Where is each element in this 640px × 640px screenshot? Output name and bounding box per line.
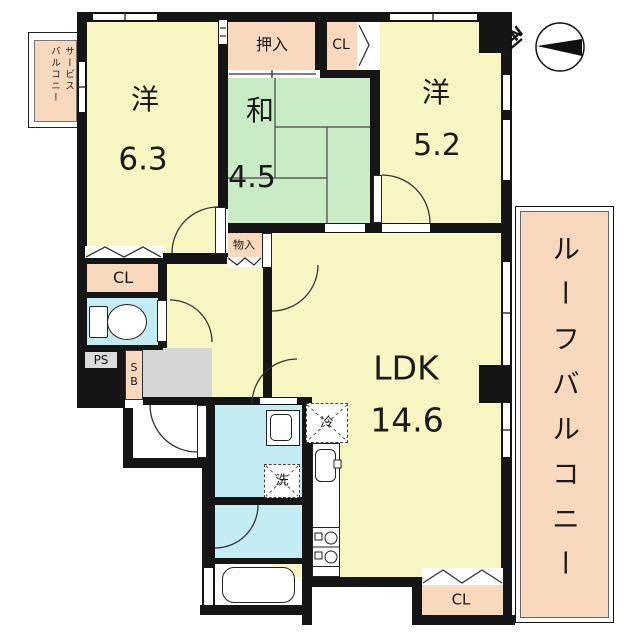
wall-ldk-jog [302,577,312,625]
compass-needle [537,39,582,56]
label-monoire: 物入 [233,240,255,251]
wall-porch-bottom [123,458,207,468]
compass-circle [536,23,584,71]
label-oshiire: 押入 [256,37,288,53]
bathtub [222,567,295,603]
floor-plan: ルーフバルコニー サービス バルコニー [0,0,640,640]
roof-balcony-label: ルーフバルコニー [550,234,578,594]
window-service-balcony [78,62,86,112]
label-western2: 洋 [422,79,450,107]
label-ldk-area: 14.6 [370,404,443,437]
closet-cl-bottom-folding [422,568,503,585]
washbasin-bowl [270,414,292,441]
wall-corner-ne [479,12,512,53]
label-laundry: 洗 [275,475,288,488]
label-ps: PS [94,354,109,366]
cl-top-door [357,22,370,70]
window-w1-top [93,13,157,21]
opening-japanese-ldk [325,224,365,232]
closet-monoire-folding [227,257,262,267]
label-western1: 洋 [131,86,159,114]
door-panel-ldk [262,233,272,268]
kitchen-sink [315,449,336,482]
entrance [143,348,212,397]
wall-ldk-bottom [302,577,422,587]
window-ldk-right-2 [502,403,511,457]
wall-corridor-ldk [263,268,272,397]
kitchen-stove [312,527,340,567]
opening-washroom-door [260,398,297,404]
window-w2-top [390,13,477,21]
service-balcony-label: サービス バルコニー [43,46,75,124]
compass: N [506,23,584,71]
wall-cl-toilet-div [85,292,163,298]
wall-clb-bottom [412,615,515,625]
door-panel-western1 [215,207,226,254]
label-ldk: LDK [373,352,438,385]
door-arc-entrance [150,405,197,452]
opening-w2-door [382,224,430,232]
window-ldk-balcony-door [502,262,511,365]
door-panel-western2 [373,175,382,223]
closet-cl-left-folding [85,246,163,258]
wall-clb-right [503,577,512,625]
window-bath-left [203,568,214,605]
door-panel-toilet [157,300,167,342]
wall-block-right [479,365,512,403]
vent-notch [219,20,227,44]
wall-mid-horizontal [218,223,512,233]
wall-oshiire-cl-div [315,22,327,70]
door-panel-entrance [197,405,207,458]
label-cl-top: CL [332,38,350,52]
label-fridge: 冷 [320,417,333,430]
label-cl-bottom: CL [452,593,471,608]
window-w2-right-2 [502,120,511,180]
toilet-bowl [107,304,147,340]
label-cl-left: CL [113,270,133,286]
room-western1 [87,22,218,254]
label-japanese-area: 4.5 [228,163,276,193]
wall-washroom-bath [215,497,302,505]
window-w2-right-1 [502,75,511,110]
label-western2-area: 5.2 [413,131,461,161]
bathroom [215,505,302,558]
wall-bath-bottom [200,605,312,615]
label-japanese: 和 [246,97,274,125]
wall-bath-tub [215,558,302,564]
label-sb: SB [129,361,140,389]
oshiire-sliding-doors [228,70,318,78]
label-western1-area: 6.3 [118,145,167,176]
toilet-tank [89,306,108,338]
